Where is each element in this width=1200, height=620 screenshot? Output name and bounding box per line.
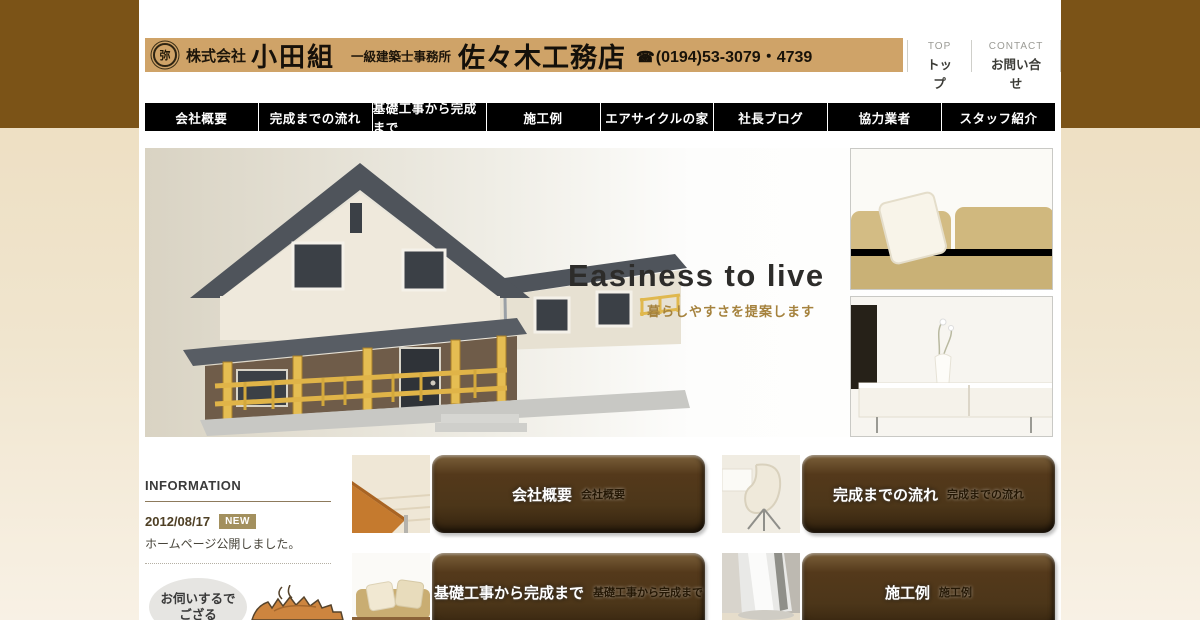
lamp-thumb-art: [722, 553, 800, 620]
hero-photo-sofa: [850, 148, 1053, 290]
utility-link-contact[interactable]: CONTACT お問い合せ: [972, 40, 1060, 72]
nav-item-flow[interactable]: 完成までの流れ: [258, 103, 372, 131]
nav-item-company[interactable]: 会社概要: [145, 103, 258, 131]
sofa-photo-art: [851, 149, 1053, 289]
nav-item-partners[interactable]: 協力業者: [827, 103, 941, 131]
chair-thumb-art: [722, 455, 800, 533]
nav-item-aircycle[interactable]: エアサイクルの家: [600, 103, 714, 131]
banner-flow-button[interactable]: 完成までの流れ 完成までの流れ: [802, 455, 1055, 533]
mascot-speech-bubble: お伺いするで ござる: [149, 578, 247, 620]
news-text: ホームページ公開しました。: [145, 535, 331, 564]
banner-company-label: 会社概要: [512, 484, 572, 505]
banner-works-shadow-label: 施工例: [939, 584, 972, 600]
nav-item-blog[interactable]: 社長ブログ: [713, 103, 827, 131]
hero-subtitle: 暮らしやすさを提案します: [647, 301, 815, 320]
brand-name: 佐々木工務店: [458, 36, 626, 75]
bubble-line1: お伺いするで: [160, 591, 235, 607]
office-type: 一級建築士事務所: [351, 46, 451, 65]
banner-works[interactable]: 施工例 施工例: [722, 553, 1055, 620]
banner-company-button[interactable]: 会社概要 会社概要: [432, 455, 705, 533]
nav-item-staff[interactable]: スタッフ紹介: [941, 103, 1055, 131]
utility-top-en: TOP: [921, 41, 958, 52]
banner-company-thumb: [352, 455, 430, 533]
utility-link-top[interactable]: TOP トップ: [908, 40, 971, 72]
banner-works-label: 施工例: [885, 582, 930, 603]
mascot-character-icon: [234, 585, 384, 620]
utility-contact-en: CONTACT: [985, 41, 1047, 52]
nav-item-works[interactable]: 施工例: [486, 103, 600, 131]
page-container: 弥 株式会社 小田組 一級建築士事務所 佐々木工務店 ☎(0194)53-307…: [139, 0, 1061, 620]
news-date: 2012/08/17: [145, 514, 210, 529]
banner-construction[interactable]: 基礎工事から完成まで 基礎工事から完成まで: [352, 553, 705, 620]
sideboard-photo-art: [851, 297, 1053, 436]
banner-company[interactable]: 会社概要 会社概要: [352, 455, 705, 533]
table-thumb-art: [352, 455, 430, 533]
utility-nav: TOP トップ CONTACT お問い合せ: [907, 40, 1061, 72]
banner-company-shadow-label: 会社概要: [581, 486, 625, 502]
information-heading: INFORMATION: [145, 478, 331, 502]
utility-contact-ja: お問い合せ: [985, 54, 1047, 92]
hero-title: Easiness to live: [568, 258, 825, 294]
banner-flow-label: 完成までの流れ: [833, 484, 938, 505]
divider: [1060, 40, 1061, 72]
banner-works-button[interactable]: 施工例 施工例: [802, 553, 1055, 620]
banner-flow-shadow-label: 完成までの流れ: [947, 486, 1024, 502]
banner-construction-shadow-label: 基礎工事から完成まで: [593, 584, 703, 600]
hero-banner: Easiness to live 暮らしやすさを提案します: [145, 148, 1055, 437]
banner-flow-thumb: [722, 455, 800, 533]
information-section: INFORMATION 2012/08/17 NEW ホームページ公開しました。: [145, 478, 331, 564]
banner-flow[interactable]: 完成までの流れ 完成までの流れ: [722, 455, 1055, 533]
banner-construction-button[interactable]: 基礎工事から完成まで 基礎工事から完成まで: [432, 553, 705, 620]
company-prefix: 株式会社: [186, 45, 246, 66]
phone-icon: ☎: [636, 49, 655, 66]
banner-works-thumb: [722, 553, 800, 620]
new-badge: NEW: [219, 514, 256, 529]
banner-grid: 会社概要 会社概要 完成までの流れ 完成までの流れ: [352, 455, 1055, 620]
company-name: 小田組: [251, 37, 335, 74]
site-logo[interactable]: 弥 株式会社 小田組 一級建築士事務所 佐々木工務店 ☎(0194)53-307…: [145, 38, 903, 72]
phone-number: ☎(0194)53-3079・4739: [636, 43, 812, 67]
banner-construction-label: 基礎工事から完成まで: [434, 582, 584, 603]
main-nav: 会社概要 完成までの流れ 基礎工事から完成まで 施工例 エアサイクルの家 社長ブ…: [145, 103, 1055, 131]
nav-item-construction[interactable]: 基礎工事から完成まで: [372, 103, 486, 131]
bubble-line2: ござる: [179, 607, 217, 620]
utility-top-ja: トップ: [921, 54, 958, 92]
hero-photo-sideboard: [850, 296, 1053, 437]
company-seal-icon: 弥: [153, 43, 177, 67]
